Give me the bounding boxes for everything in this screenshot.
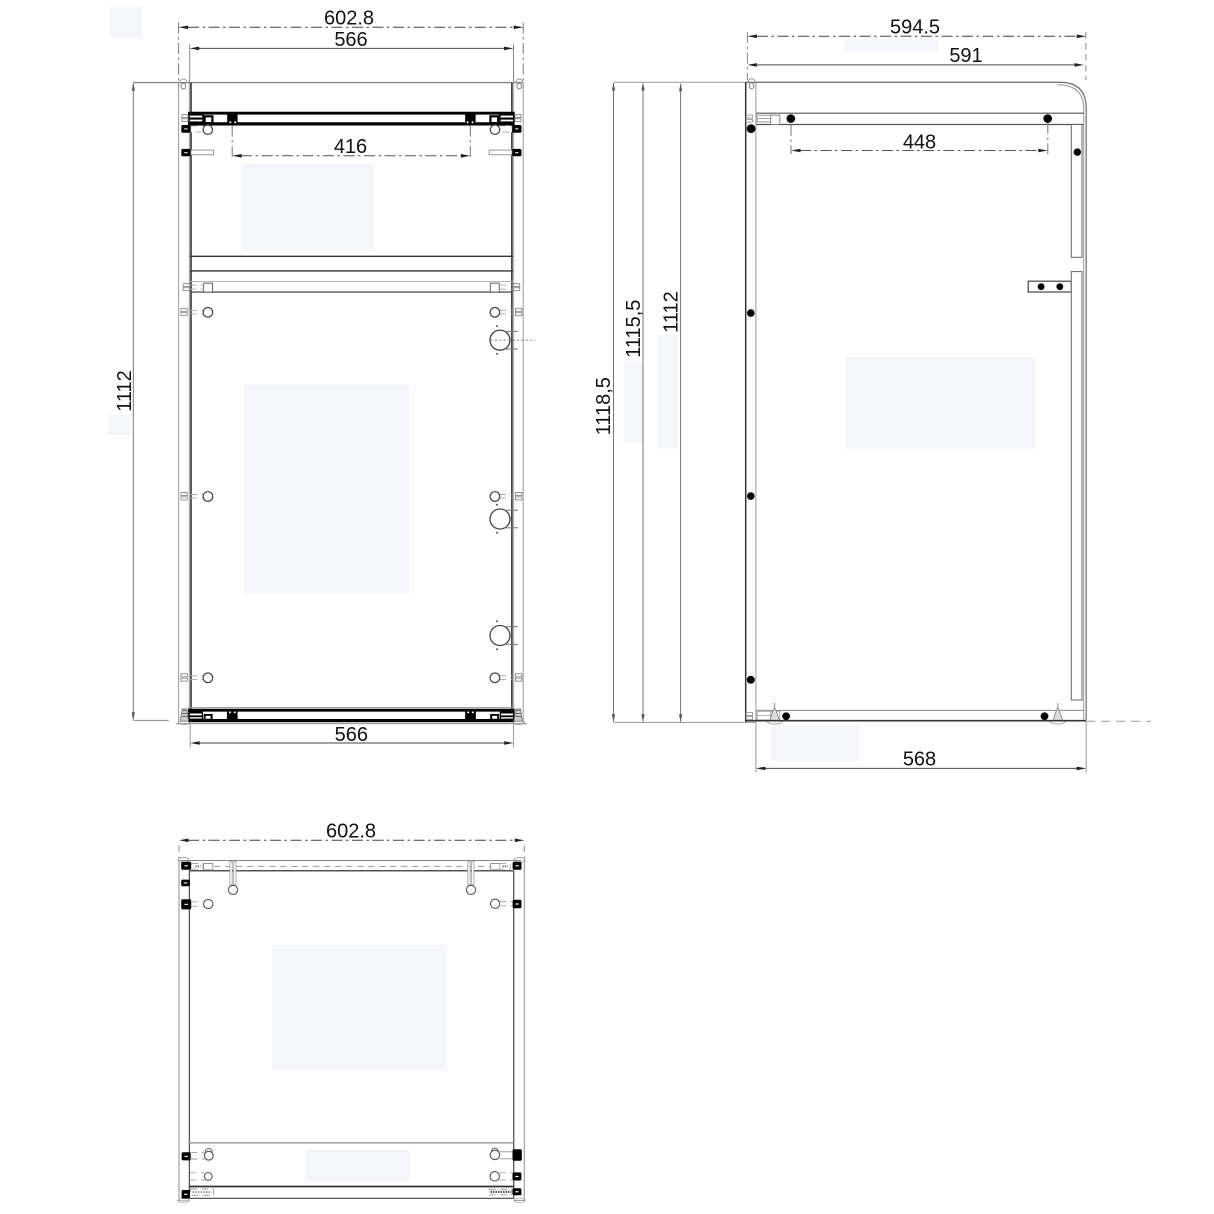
svg-text:602.8: 602.8 [324,7,374,29]
svg-text:416: 416 [334,136,367,158]
svg-text:1112: 1112 [114,370,136,412]
svg-text:566: 566 [334,29,367,51]
svg-text:1112: 1112 [661,291,683,333]
svg-text:594.5: 594.5 [890,16,940,38]
svg-text:602.8: 602.8 [326,820,376,842]
svg-text:568: 568 [903,749,936,771]
svg-text:1115,5: 1115,5 [623,300,645,358]
svg-text:591: 591 [949,45,982,67]
svg-text:1118,5: 1118,5 [593,377,615,435]
